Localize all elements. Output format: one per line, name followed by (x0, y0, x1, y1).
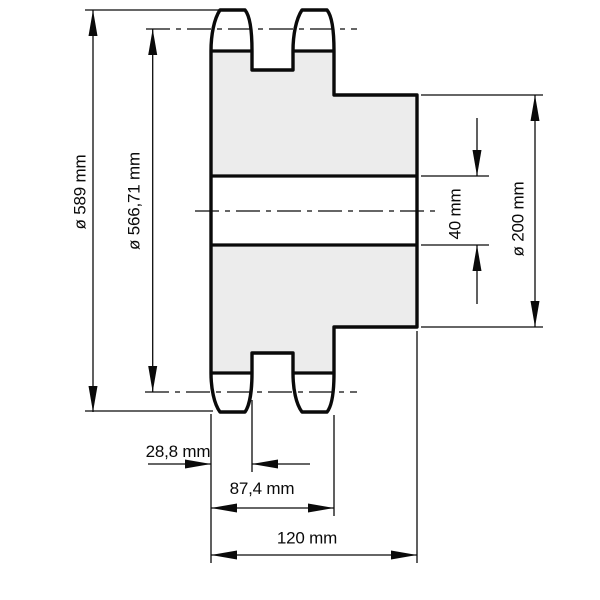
arrow-up-icon (148, 29, 157, 55)
sprocket-drawing: ø 589 mm ø 566,71 mm 40 mm ø 200 mm (0, 0, 600, 600)
arrow-up-icon (531, 95, 540, 121)
technical-drawing-canvas: ø 589 mm ø 566,71 mm 40 mm ø 200 mm (0, 0, 600, 600)
arrow-up-icon (89, 10, 98, 36)
arrow-down-icon (531, 301, 540, 327)
dim-overall-width: 120 mm (211, 529, 417, 560)
arrow-down-icon (148, 366, 157, 392)
tooth-section-width-label: 28,8 mm (146, 442, 211, 461)
arrow-down-icon (473, 150, 482, 176)
dim-hub-diameter: ø 200 mm (421, 95, 543, 327)
bore-diameter-label: 40 mm (446, 188, 465, 239)
arrow-right-icon (391, 551, 417, 560)
arrow-right-icon (308, 504, 334, 513)
pitch-diameter-label: ø 566,71 mm (125, 152, 144, 250)
teeth-span-width-label: 87,4 mm (230, 479, 295, 498)
arrow-up-icon (473, 245, 482, 271)
dim-pitch-diameter: ø 566,71 mm (125, 29, 158, 392)
overall-width-label: 120 mm (277, 529, 337, 548)
arrow-left-icon (211, 551, 237, 560)
arrow-down-icon (89, 386, 98, 412)
arrow-left-icon (211, 504, 237, 513)
arrow-left-icon (252, 460, 278, 469)
hub-diameter-label: ø 200 mm (509, 182, 528, 257)
dim-teeth-span-width: 87,4 mm (211, 479, 334, 513)
dim-tooth-section-width: 28,8 mm (146, 442, 310, 469)
tip-diameter-label: ø 589 mm (71, 155, 90, 230)
